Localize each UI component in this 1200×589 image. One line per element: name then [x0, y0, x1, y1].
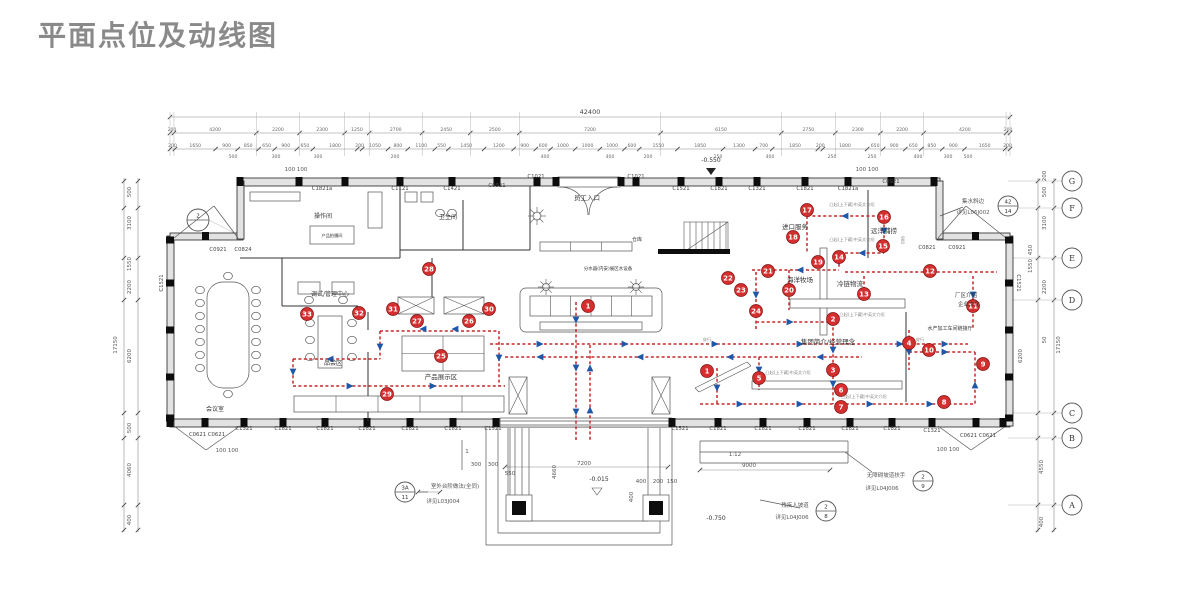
svg-text:C1821: C1821: [401, 426, 418, 432]
svg-text:900: 900: [890, 143, 899, 149]
svg-text:穿行: 穿行: [703, 336, 711, 343]
svg-text:进口服务: 进口服务: [782, 222, 809, 231]
svg-text:1000: 1000: [606, 143, 618, 149]
svg-text:C1821: C1821: [710, 186, 727, 192]
svg-text:集团简介/经营理念: 集团简介/经营理念: [801, 337, 856, 346]
route-arrow: [587, 406, 594, 413]
svg-text:500: 500: [1042, 186, 1048, 197]
svg-text:C0921: C0921: [882, 179, 899, 185]
svg-text:A: A: [1068, 501, 1075, 510]
route-arrow: [737, 401, 744, 408]
svg-text:1: 1: [465, 449, 469, 455]
route-arrow: [714, 385, 721, 392]
svg-text:C1821: C1821: [841, 426, 858, 432]
route-arrow: [537, 341, 544, 348]
svg-text:产品展示区: 产品展示区: [425, 372, 458, 381]
svg-text:企业文化: 企业文化: [958, 300, 981, 308]
svg-text:3100: 3100: [127, 216, 133, 230]
svg-text:室外台阶做法(全同): 室外台阶做法(全同): [431, 482, 479, 490]
svg-text:100 100: 100 100: [856, 167, 879, 173]
svg-text:品尝区: 品尝区: [324, 359, 342, 367]
floor-plan-drawing: 4240020042002200230012502700245025007200…: [0, 0, 1200, 589]
svg-text:穿行: 穿行: [916, 336, 924, 343]
page: 平面点位及动线图 4240020042002200230012502700245…: [0, 0, 1200, 589]
svg-text:850: 850: [927, 143, 936, 149]
svg-text:21: 21: [763, 268, 773, 276]
route-arrow: [830, 347, 837, 354]
svg-text:C1821: C1821: [274, 426, 291, 432]
svg-text:31: 31: [388, 306, 398, 314]
svg-text:6200: 6200: [127, 349, 133, 363]
svg-text:-0.750: -0.750: [706, 515, 726, 522]
route-arrow: [347, 383, 354, 390]
route-arrow: [942, 349, 949, 356]
svg-text:C0821: C0821: [918, 245, 935, 251]
svg-text:30: 30: [484, 306, 494, 314]
svg-text:4: 4: [907, 340, 912, 348]
svg-text:1200: 1200: [493, 143, 505, 149]
svg-text:6200: 6200: [1018, 349, 1024, 363]
svg-text:1: 1: [586, 303, 591, 311]
svg-text:C1821: C1821: [754, 426, 771, 432]
route-arrow: [972, 381, 979, 388]
svg-text:9: 9: [981, 361, 986, 369]
svg-text:凸起(上下藏)中英文介绍: 凸起(上下藏)中英文介绍: [841, 393, 886, 400]
svg-text:4200: 4200: [209, 127, 221, 133]
route-arrow: [796, 267, 803, 274]
svg-text:海洋牧场: 海洋牧场: [787, 275, 814, 284]
svg-text:凸起(上下藏)中英文介绍: 凸起(上下藏)中英文介绍: [839, 311, 884, 318]
svg-text:C1521: C1521: [159, 274, 165, 291]
svg-text:详见L03J004: 详见L03J004: [426, 497, 460, 505]
svg-text:C1021: C1021: [527, 174, 544, 180]
svg-text:C1521: C1521: [484, 426, 501, 432]
svg-text:2200: 2200: [1042, 280, 1048, 294]
svg-text:14: 14: [834, 254, 844, 262]
svg-text:2: 2: [831, 316, 836, 324]
svg-text:26: 26: [464, 318, 474, 326]
svg-text:C1121: C1121: [391, 186, 408, 192]
svg-text:1850: 1850: [694, 143, 706, 149]
route-arrow: [858, 250, 865, 257]
svg-text:2300: 2300: [316, 127, 328, 133]
route-arrow: [816, 354, 823, 361]
svg-text:C1821: C1821: [316, 426, 333, 432]
svg-text:详见L04J006: 详见L04J006: [775, 513, 809, 521]
svg-text:300: 300: [488, 462, 499, 468]
svg-text:凸起(上下藏)中英文介绍: 凸起(上下藏)中英文介绍: [765, 369, 810, 376]
svg-text:F: F: [1069, 204, 1075, 213]
svg-text:650: 650: [262, 143, 271, 149]
svg-text:18: 18: [788, 234, 798, 242]
svg-text:9: 9: [921, 484, 925, 490]
route-arrow: [430, 383, 437, 390]
svg-text:C: C: [1069, 409, 1075, 418]
svg-text:9000: 9000: [742, 463, 756, 469]
route-arrow: [927, 401, 934, 408]
svg-text:远洋捕捞: 远洋捕捞: [871, 226, 898, 235]
svg-text:100 100: 100 100: [285, 167, 308, 173]
svg-text:7: 7: [839, 404, 844, 412]
route-arrow: [573, 409, 580, 416]
svg-text:员工入口: 员工入口: [574, 194, 600, 202]
svg-text:详见L06J002: 详见L06J002: [956, 208, 989, 216]
route-arrow: [496, 355, 503, 362]
svg-text:300: 300: [272, 154, 281, 160]
svg-text:1650: 1650: [979, 143, 991, 149]
svg-text:600: 600: [627, 143, 636, 149]
svg-text:1800: 1800: [329, 143, 341, 149]
route-arrow: [942, 341, 949, 348]
svg-text:产品拍摄间: 产品拍摄间: [322, 232, 343, 239]
svg-text:2750: 2750: [802, 127, 814, 133]
svg-text:1000: 1000: [582, 143, 594, 149]
svg-text:调试/管理中心: 调试/管理中心: [311, 290, 349, 298]
svg-text:650: 650: [871, 143, 880, 149]
svg-text:C1821: C1821: [796, 186, 813, 192]
svg-text:50: 50: [1042, 336, 1048, 343]
svg-text:17150: 17150: [1056, 336, 1062, 354]
svg-text:22: 22: [723, 275, 733, 283]
svg-text:13: 13: [859, 291, 869, 299]
svg-text:1550: 1550: [1028, 259, 1034, 273]
svg-text:42400: 42400: [580, 108, 601, 116]
svg-text:8: 8: [942, 399, 947, 407]
svg-text:700: 700: [759, 143, 768, 149]
svg-text:28: 28: [424, 266, 434, 274]
svg-text:2500: 2500: [489, 127, 501, 133]
svg-text:17: 17: [802, 207, 812, 215]
svg-text:C1521: C1521: [672, 186, 689, 192]
svg-text:27: 27: [412, 318, 422, 326]
svg-text:450: 450: [1028, 244, 1034, 255]
svg-text:2: 2: [824, 505, 828, 511]
route-arrow: [797, 401, 804, 408]
svg-text:5: 5: [757, 375, 762, 383]
svg-text:C0921: C0921: [488, 183, 505, 189]
route-arrow: [726, 354, 733, 361]
svg-text:C0824: C0824: [234, 247, 252, 253]
svg-text:2450: 2450: [440, 127, 452, 133]
svg-text:2700: 2700: [390, 127, 402, 133]
svg-text:400: 400: [629, 491, 635, 502]
svg-text:33: 33: [302, 311, 312, 319]
route-arrow: [712, 341, 719, 348]
svg-text:1:12: 1:12: [729, 452, 741, 458]
route-arrow: [573, 365, 580, 372]
svg-text:500: 500: [127, 422, 133, 433]
svg-text:200: 200: [391, 154, 400, 160]
svg-text:600: 600: [539, 143, 548, 149]
svg-text:1050: 1050: [369, 143, 381, 149]
svg-text:20: 20: [784, 287, 794, 295]
svg-text:400: 400: [636, 479, 647, 485]
svg-text:C0621 C0621: C0621 C0621: [189, 432, 225, 438]
svg-text:C1821: C1821: [883, 426, 900, 432]
svg-text:12: 12: [925, 268, 935, 276]
route-arrow: [290, 369, 297, 376]
svg-text:会议室: 会议室: [206, 405, 224, 413]
svg-text:1850: 1850: [789, 143, 801, 149]
svg-text:C1821: C1821: [798, 426, 815, 432]
svg-text:残疾人坡道: 残疾人坡道: [781, 501, 809, 509]
svg-text:B: B: [1069, 434, 1075, 443]
svg-text:250: 250: [868, 154, 877, 160]
svg-text:6150: 6150: [715, 127, 727, 133]
svg-text:凸起(上下藏)中英文介绍: 凸起(上下藏)中英文介绍: [829, 201, 874, 208]
svg-text:详见L04J006: 详见L04J006: [865, 484, 899, 492]
svg-text:10: 10: [924, 347, 934, 355]
svg-text:4060: 4060: [127, 463, 133, 477]
svg-text:500: 500: [127, 186, 133, 197]
svg-text:无障碍坡道扶手: 无障碍坡道扶手: [867, 471, 906, 479]
svg-text:C1321: C1321: [235, 426, 252, 432]
svg-text:25: 25: [436, 353, 446, 361]
svg-text:400: 400: [1039, 516, 1045, 527]
svg-text:550: 550: [437, 143, 446, 149]
svg-text:14: 14: [1005, 209, 1012, 215]
svg-text:C1321: C1321: [748, 186, 765, 192]
svg-text:400: 400: [766, 154, 775, 160]
svg-text:C1421: C1421: [443, 186, 460, 192]
svg-text:500: 500: [229, 154, 238, 160]
svg-text:1100: 1100: [415, 143, 427, 149]
svg-text:C1021: C1021: [627, 174, 644, 180]
svg-text:操作间: 操作间: [314, 212, 332, 220]
svg-text:900: 900: [949, 143, 958, 149]
svg-text:200: 200: [1042, 170, 1048, 181]
svg-text:200: 200: [653, 479, 664, 485]
svg-text:7200: 7200: [577, 461, 591, 467]
svg-text:C1821: C1821: [358, 426, 375, 432]
svg-text:400: 400: [127, 514, 133, 525]
svg-text:900: 900: [281, 143, 290, 149]
svg-text:分水器(内安)展区水设备: 分水器(内安)展区水设备: [584, 265, 633, 272]
svg-text:650: 650: [300, 143, 309, 149]
svg-text:2200: 2200: [127, 280, 133, 294]
svg-text:900: 900: [520, 143, 529, 149]
svg-text:850: 850: [244, 143, 253, 149]
route-arrow: [636, 354, 643, 361]
route-arrow: [787, 319, 794, 326]
svg-text:C0921: C0921: [209, 247, 226, 253]
svg-text:-0.550: -0.550: [701, 157, 721, 164]
svg-text:2200: 2200: [896, 127, 908, 133]
svg-text:水产加工车间链接厅: 水产加工车间链接厅: [927, 325, 972, 332]
svg-text:23: 23: [736, 287, 746, 295]
svg-text:650: 650: [909, 143, 918, 149]
svg-text:厂区介绍: 厂区介绍: [955, 291, 978, 299]
svg-text:400: 400: [541, 154, 550, 160]
svg-text:C1821: C1821: [709, 426, 726, 432]
svg-text:100 100: 100 100: [216, 448, 239, 454]
svg-text:冷链物流: 冷链物流: [837, 279, 864, 288]
svg-text:7200: 7200: [584, 127, 596, 133]
svg-text:C1521: C1521: [671, 426, 688, 432]
svg-text:800: 800: [393, 143, 402, 149]
route-arrow: [377, 344, 384, 351]
svg-text:400: 400: [606, 154, 615, 160]
route-arrow: [587, 364, 594, 371]
svg-text:G: G: [1069, 177, 1075, 186]
svg-text:4550: 4550: [1039, 460, 1045, 474]
svg-text:1550: 1550: [653, 143, 665, 149]
svg-text:2200: 2200: [272, 127, 284, 133]
svg-text:1650: 1650: [189, 143, 201, 149]
route-arrow: [622, 341, 629, 348]
route-arrow: [867, 401, 874, 408]
svg-text:100 100: 100 100: [937, 447, 960, 453]
svg-text:集水斜边: 集水斜边: [962, 197, 985, 205]
svg-text:4200: 4200: [959, 127, 971, 133]
svg-text:2: 2: [921, 475, 925, 481]
svg-text:4660: 4660: [552, 465, 558, 479]
svg-text:300: 300: [471, 462, 482, 468]
svg-text:11: 11: [402, 495, 409, 501]
route-arrow: [536, 354, 543, 361]
svg-text:C1321: C1321: [923, 428, 940, 434]
svg-text:3100: 3100: [1042, 216, 1048, 230]
svg-text:C0621 C0621: C0621 C0621: [960, 433, 996, 439]
svg-text:300: 300: [944, 154, 953, 160]
svg-text:24: 24: [751, 308, 761, 316]
svg-text:仓库: 仓库: [632, 236, 642, 243]
svg-text:C1821: C1821: [444, 426, 461, 432]
svg-text:200: 200: [644, 154, 653, 160]
svg-text:1000: 1000: [557, 143, 569, 149]
svg-text:-0.015: -0.015: [589, 476, 609, 483]
svg-text:1450: 1450: [460, 143, 472, 149]
svg-text:300: 300: [314, 154, 323, 160]
svg-text:1800: 1800: [839, 143, 851, 149]
svg-text:400: 400: [914, 154, 923, 160]
svg-text:42: 42: [1005, 200, 1012, 206]
svg-text:29: 29: [382, 391, 392, 399]
svg-text:3: 3: [831, 367, 836, 375]
svg-text:19: 19: [813, 259, 823, 267]
dimension-rows: 4240020042002200230012502700245025007200…: [168, 108, 1013, 160]
svg-text:C0921: C0921: [948, 245, 965, 251]
svg-text:900: 900: [900, 236, 905, 244]
svg-text:C1821a: C1821a: [838, 186, 858, 192]
svg-text:1: 1: [705, 368, 710, 376]
svg-text:2300: 2300: [852, 127, 864, 133]
svg-text:C1521: C1521: [1015, 274, 1021, 291]
svg-text:8: 8: [824, 514, 828, 520]
route-arrow: [841, 213, 848, 220]
svg-text:卫生间: 卫生间: [439, 213, 457, 221]
svg-text:3A: 3A: [401, 486, 408, 492]
svg-text:250: 250: [828, 154, 837, 160]
svg-text:17150: 17150: [113, 336, 119, 354]
svg-text:C1821a: C1821a: [312, 186, 332, 192]
svg-text:1550: 1550: [127, 257, 133, 271]
svg-text:32: 32: [354, 310, 364, 318]
svg-text:16: 16: [879, 214, 889, 222]
svg-text:900: 900: [222, 143, 231, 149]
route-arrow: [753, 292, 760, 299]
svg-text:E: E: [1069, 254, 1075, 263]
svg-text:15: 15: [878, 243, 888, 251]
svg-text:1250: 1250: [351, 127, 363, 133]
svg-text:500: 500: [964, 154, 973, 160]
svg-text:D: D: [1069, 296, 1075, 305]
svg-text:凸起(上下藏)中英文介绍: 凸起(上下藏)中英文介绍: [829, 236, 874, 243]
svg-text:1300: 1300: [733, 143, 745, 149]
